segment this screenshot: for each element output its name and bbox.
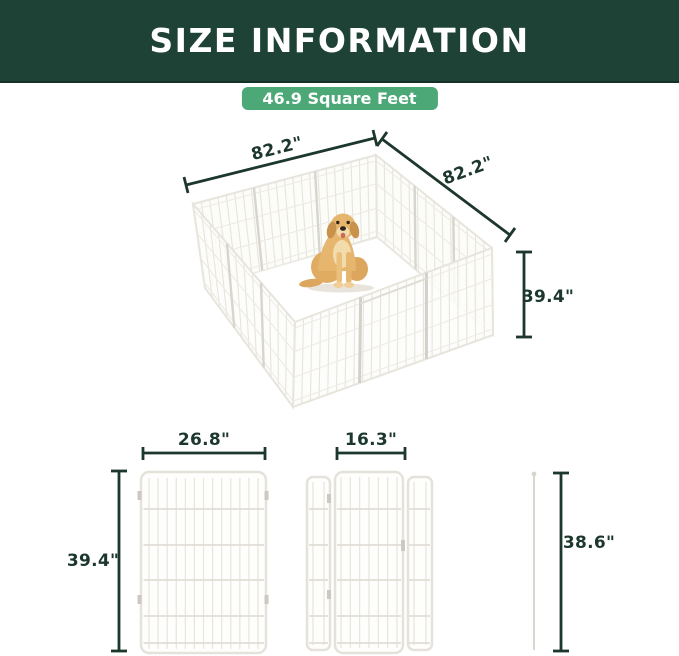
dim-label-door-width: 16.3" — [345, 430, 397, 450]
page-title: SIZE INFORMATION — [149, 21, 529, 60]
door-latch — [401, 540, 405, 551]
stake-dimension-lines — [553, 473, 569, 651]
dim-label-pen-height: 39.4" — [522, 287, 574, 307]
door-panel-front-view — [307, 472, 432, 653]
dim-label-panel-width: 26.8" — [178, 430, 230, 450]
door-hinge — [327, 590, 331, 599]
header-banner: SIZE INFORMATION — [0, 0, 679, 83]
dim-label-panel-height: 39.4" — [67, 551, 119, 571]
dim-label-length-right: 82.2" — [440, 153, 496, 190]
panel-front-view — [138, 472, 269, 653]
dim-label-length-left: 82.2" — [249, 133, 305, 165]
playpen-3d-illustration: 82.2" 82.2" 39.4" — [184, 130, 574, 407]
area-badge: 46.9 Square Feet — [241, 87, 437, 110]
door-hinge — [327, 494, 331, 503]
ground-stake — [532, 472, 537, 650]
size-information-infographic: SIZE INFORMATION 46.9 Square Feet — [0, 0, 679, 656]
dim-label-stake-height: 38.6" — [563, 533, 615, 553]
